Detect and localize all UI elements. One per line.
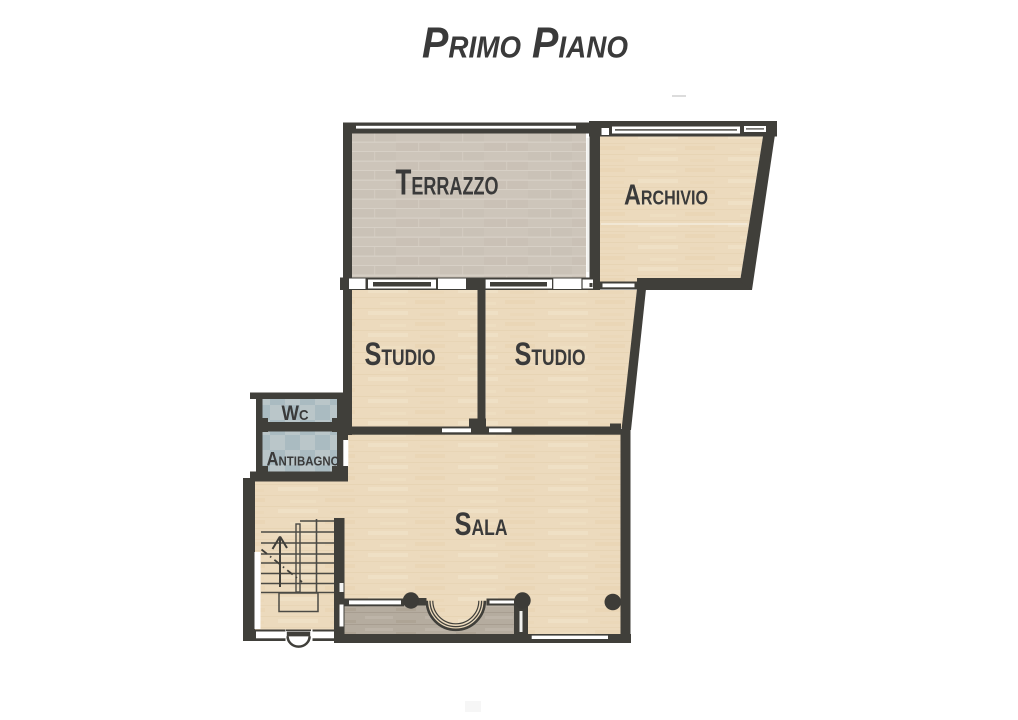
svg-text:Terrazzo: Terrazzo (396, 162, 499, 203)
svg-text:Primo Piano: Primo Piano (422, 19, 628, 68)
svg-text:Archivio: Archivio (624, 180, 708, 212)
svg-text:Antibagno: Antibagno (267, 450, 340, 471)
svg-text:Studio: Studio (515, 336, 586, 372)
svg-text:Wc: Wc (282, 402, 309, 425)
svg-text:Studio: Studio (365, 336, 436, 372)
svg-text:Sala: Sala (455, 506, 508, 542)
